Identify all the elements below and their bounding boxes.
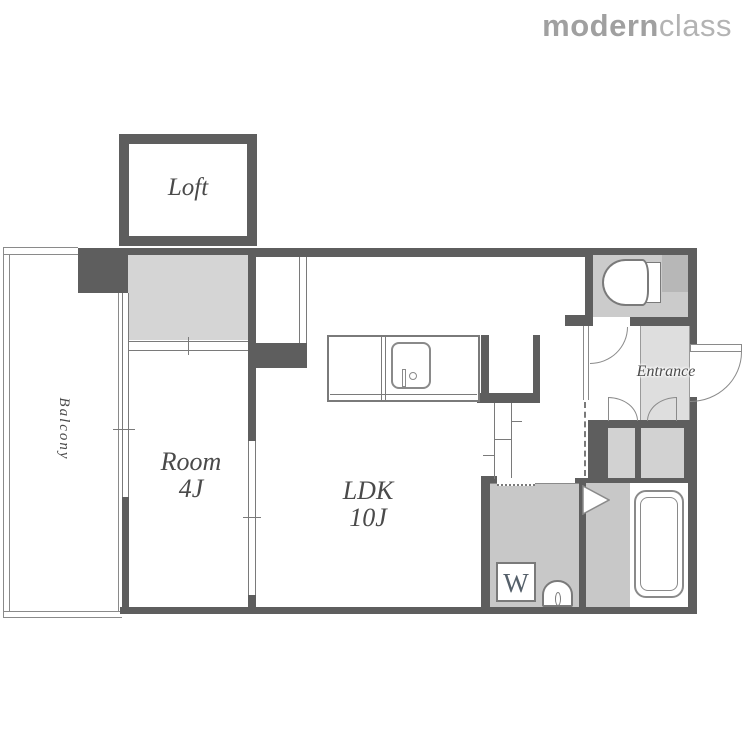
brand-logo-light: class [659,8,732,43]
ldk-label-line1: LDK [318,477,418,504]
room-label-line1: Room [141,448,241,475]
hall-boundary-line-a [583,326,584,400]
hall-boundary-line-b [588,326,589,400]
wall-cabinet-left-block [588,428,608,478]
toilet-door-swing-arc-icon [590,327,628,364]
room-west-window-tick [113,429,135,430]
shoe-cabinet-left-door-arc-icon [608,397,638,421]
washroom-dotted-door [497,478,535,486]
room-label: Room 4J [141,448,241,503]
room-ldk-sliding-door [248,441,256,595]
kitchen-faucet-bar [402,369,406,387]
shoe-cabinet-left-fill [608,428,635,478]
room-ldk-door-tick [243,517,261,518]
wall-room-ldk-lower [248,595,256,614]
room-closet-fill [128,255,248,340]
bath-door-triangle-icon [582,485,610,515]
kitchen-partition-line-a [299,257,300,343]
wall-bottom [120,607,697,614]
kitchen-partition-line-b [306,257,307,343]
room-west-window [122,293,129,497]
brand-logo: modernclass [470,8,732,44]
wall-cabinet-top-band [588,420,697,428]
ldk-label: LDK 10J [318,477,418,532]
room-label-line2: 4J [141,475,241,502]
washing-machine-label: W [503,568,528,598]
kitchen-counter-divider-b [385,337,386,400]
corridor-sliding-door-tick-right [512,421,522,422]
balcony-rail-top-inner [3,254,78,255]
wall-cabinet-right [684,428,697,478]
wall-toilet-south-right [630,317,697,326]
corridor-sliding-door-line-a [494,403,495,479]
floor-plan: modernclass Loft Balcony [0,0,750,750]
wall-top-left-block [78,248,128,293]
corridor-sliding-door-line-b [511,403,512,479]
washing-machine-box: W [496,562,536,602]
shoe-cabinet-right-fill [641,428,684,478]
balcony-label: Balcony [55,389,71,469]
balcony-building-edge [118,254,119,611]
corridor-sliding-door-tick-left [483,455,494,456]
balcony-rail-bottom-outer [3,617,122,618]
kitchen-counter-divider-a [381,337,382,400]
ldk-label-line2: 10J [318,504,418,531]
wall-toilet-south-left [565,315,593,326]
loft-edge-dashed-line [584,402,586,476]
bathtub-inner-line [640,497,678,591]
loft-label: Loft [148,175,228,201]
balcony-rail-top-outer [3,247,78,248]
kitchen-faucet-knob [409,372,417,380]
wall-chunk-center [255,343,307,368]
washbasin-drain [555,592,561,606]
kitchen-counter-edge-line [330,394,477,395]
toilet-icon [602,259,649,306]
wall-washroom-west [481,478,490,607]
balcony-rail-left-inner [9,254,10,611]
balcony-rail-bottom-inner [3,611,122,612]
wall-room-west-lower [122,497,129,614]
front-door-leaf [690,344,742,352]
wall-fridge-bottom [477,393,540,403]
closet-sliding-door-tick [188,337,189,355]
balcony-rail-left-outer [3,247,4,617]
entrance-label: Entrance [616,364,716,381]
pipe-space-fill [662,255,688,292]
kitchen-sink-icon [391,342,431,389]
brand-logo-bold: modern [542,8,659,43]
corridor-sliding-door-crossbar [494,439,512,440]
